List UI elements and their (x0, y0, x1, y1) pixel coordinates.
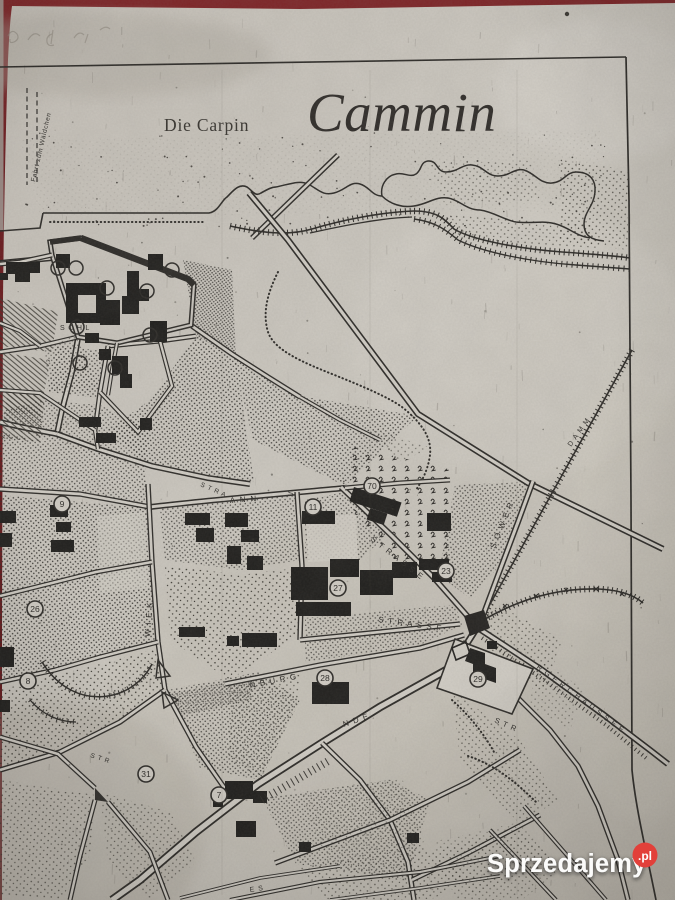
svg-text:.pl: .pl (638, 849, 652, 863)
svg-text:Sprzedajemy: Sprzedajemy (487, 850, 647, 878)
